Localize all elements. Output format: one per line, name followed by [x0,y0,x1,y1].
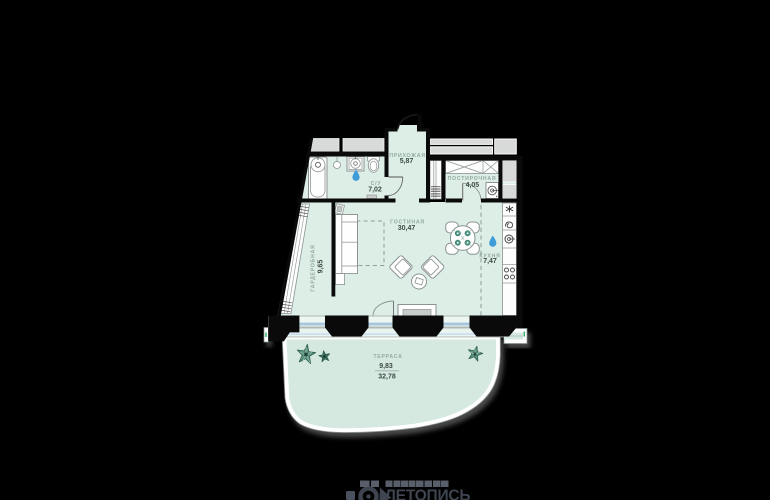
svg-text:ТЕРРАСА: ТЕРРАСА [373,354,402,360]
svg-text:4,05: 4,05 [466,182,480,189]
svg-text:7,47: 7,47 [483,258,497,265]
svg-text:30,47: 30,47 [398,225,416,232]
svg-text:32,78: 32,78 [378,374,396,381]
svg-text:9,65: 9,65 [318,260,325,274]
svg-text:5,87: 5,87 [400,158,414,165]
svg-text:9,83: 9,83 [379,363,393,370]
svg-text:7,02: 7,02 [368,187,382,194]
svg-text:ЛЕТОПИСЬ: ЛЕТОПИСЬ [385,488,470,500]
svg-text:ГАРДЕРОБНАЯ: ГАРДЕРОБНАЯ [311,244,317,291]
